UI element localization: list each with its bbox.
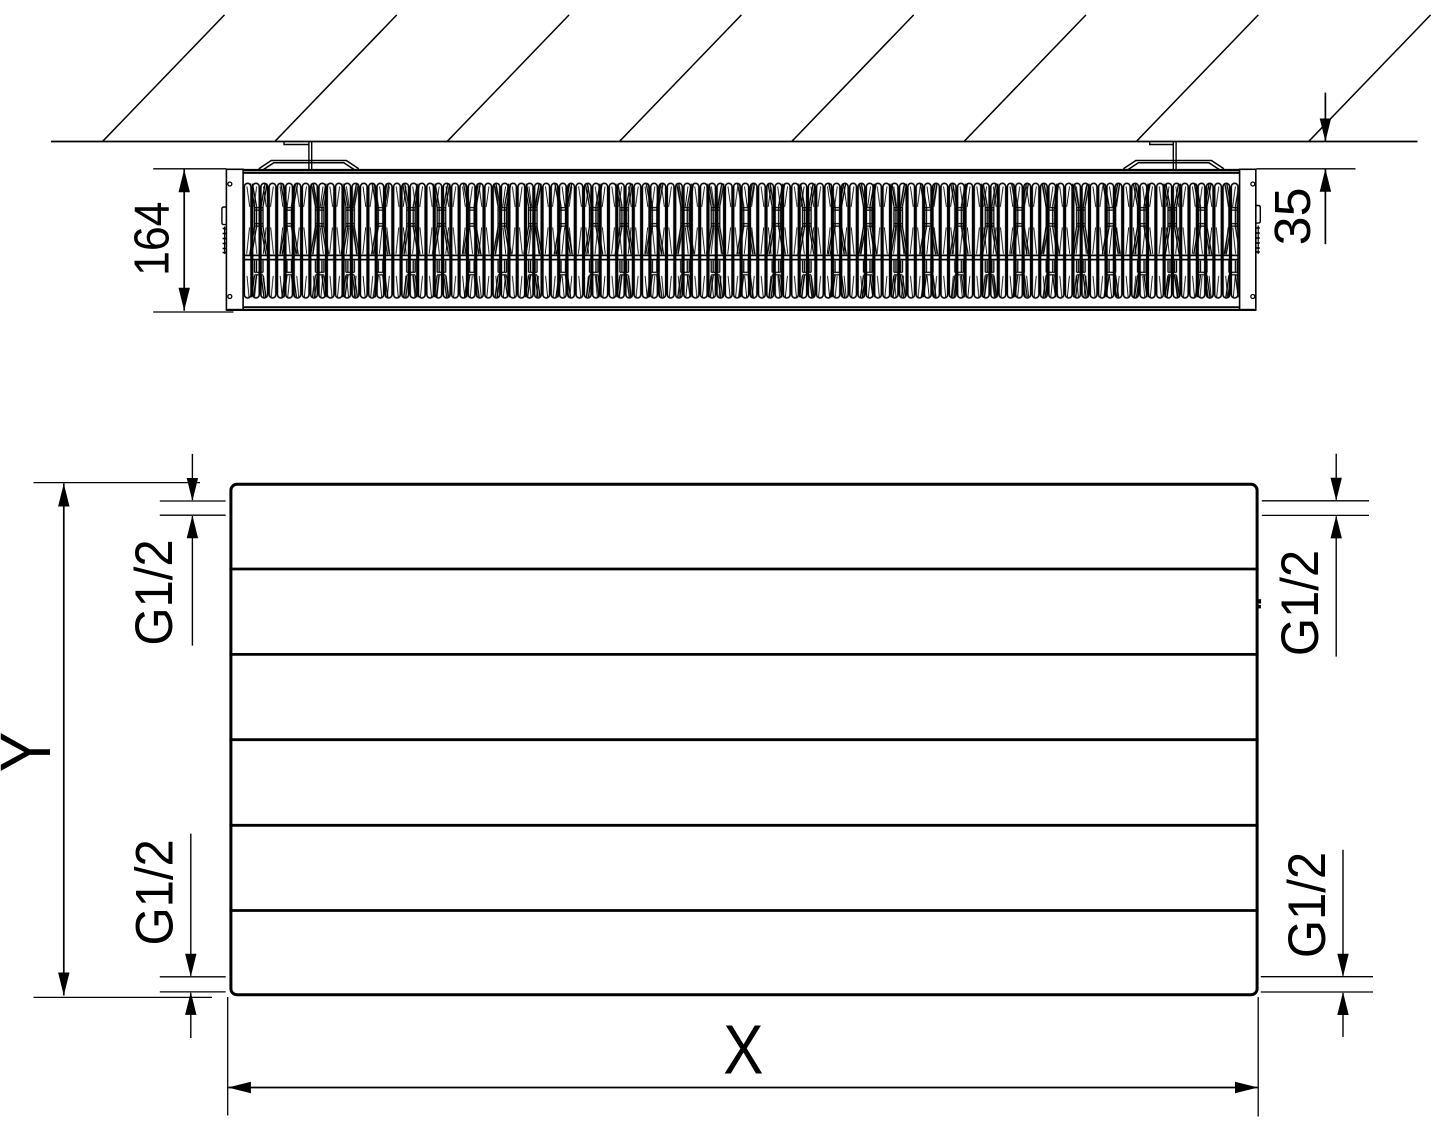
svg-text:G1/2: G1/2 xyxy=(1270,550,1329,656)
svg-text:G1/2: G1/2 xyxy=(1277,852,1336,958)
svg-text:Y: Y xyxy=(0,732,66,773)
svg-text:35: 35 xyxy=(1264,187,1321,245)
svg-text:164: 164 xyxy=(123,202,179,276)
svg-text:G1/2: G1/2 xyxy=(125,839,184,945)
svg-text:X: X xyxy=(723,1010,763,1088)
svg-text:G1/2: G1/2 xyxy=(124,539,183,645)
